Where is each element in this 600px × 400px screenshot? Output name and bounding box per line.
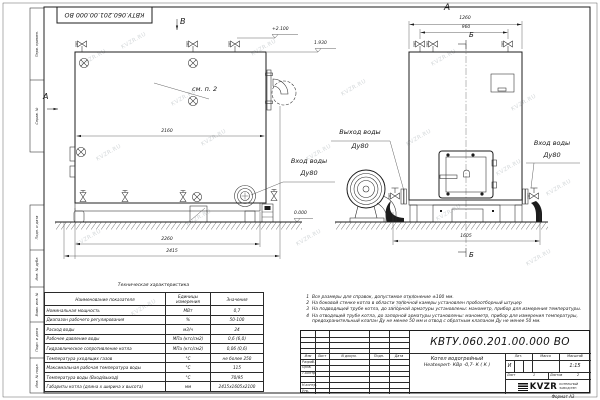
spec-col-name: Наименование показателя <box>45 293 166 306</box>
spec-row: Диапазон рабочего регулирования % 50-100 <box>45 315 264 325</box>
sheets-value: 2 <box>577 374 589 377</box>
hatch-icon <box>188 96 197 105</box>
drawing-sheet: KVZR.RU KVZR.RU KVZR.RU KVZR.RU KVZR.RU … <box>0 0 600 400</box>
lit-label: Лит. <box>505 355 532 358</box>
inlet-callout: Вход воды <box>282 158 336 165</box>
col-list: Лист <box>315 355 329 358</box>
dim-2260: 2260 <box>152 238 182 243</box>
margin-stamp: Инв. № подл. <box>32 358 43 393</box>
inlet-callout-front-dn: Ду80 <box>524 152 580 159</box>
notes-list: 1 Все размеры для справок, допустимое от… <box>302 295 587 325</box>
hatch-icon <box>188 58 197 67</box>
lit-value: И <box>505 364 514 369</box>
spec-col-units: Единицы измерения <box>166 293 211 306</box>
row-razrab: Разраб. <box>302 361 328 364</box>
row-tkontr: Т.контр. <box>302 372 328 375</box>
dim-1260: 1260 <box>450 17 480 22</box>
spec-row: Гидравлическое сопротивление котла МПа (… <box>45 344 264 354</box>
spec-table: Наименование показателя Единицы измерени… <box>44 292 264 392</box>
section-label-b-top: Б <box>469 32 474 39</box>
col-podp: Подп. <box>369 355 389 358</box>
door-handle <box>440 175 457 179</box>
spec-col-value: Значения <box>211 293 264 306</box>
note-number: 2 <box>302 301 309 306</box>
section-label-b: В <box>180 18 186 26</box>
row-nkontr: Н.контр. <box>302 384 328 387</box>
valve-icon <box>502 41 513 47</box>
scale-label: Масштаб <box>559 355 591 358</box>
note-number: 4 <box>302 314 309 324</box>
row-prov: Пров. <box>302 366 328 369</box>
spec-row: Номинальная мощность МВт 0,7 <box>45 306 264 316</box>
elevation-0000: 0.000 <box>294 212 307 217</box>
section-label-b-bottom: Б <box>469 252 474 259</box>
view-label-a: А <box>444 4 450 13</box>
note-text: На подводящей трубе котла, до запорной а… <box>312 307 587 312</box>
margin-stamp: Перв. примен. <box>32 8 43 80</box>
logo-mark-icon <box>518 383 528 391</box>
elevation-2100: +2.100 <box>272 28 289 33</box>
company-line-2: ЗАВОД РЭП <box>559 387 578 390</box>
col-data: Дата <box>389 355 409 358</box>
col-izm: Изм <box>301 355 315 358</box>
note-text: На отводящей трубе котла, до запорной ар… <box>312 314 587 324</box>
col-doc: N докум. <box>329 355 369 358</box>
see-note-callout: см. п. 2 <box>192 86 217 93</box>
margin-stamp: Подп. и дата <box>32 322 43 358</box>
dim-1605: 1605 <box>451 235 481 240</box>
section-label-a: А <box>43 93 48 101</box>
sheets-label: Листов <box>550 374 574 377</box>
valve-icon <box>187 41 198 47</box>
hatch-icon <box>192 192 201 201</box>
row-utv: Утв. <box>302 390 328 393</box>
outlet-callout-dn: Ду80 <box>330 143 390 150</box>
valve-icon <box>122 191 128 202</box>
dim-2415: 2415 <box>157 250 187 255</box>
title-block: Изм Лист N докум. Подп. Дата Разраб. Про… <box>300 330 590 393</box>
hatch-icon <box>79 58 88 67</box>
margin-stamp: Инв. № дубл. <box>32 250 43 287</box>
water-inlet-flange <box>235 186 256 207</box>
company-logo: KVZR КОТЕЛЬНЫЙ ЗАВОД РЭП <box>505 379 591 394</box>
spec-row: Габариты котла (длина х ширина х высота)… <box>45 382 264 392</box>
note-item: 4 На отводящей трубе котла, до запорной … <box>302 314 587 324</box>
note-number: 3 <box>302 307 309 312</box>
scale-value: 1:15 <box>559 364 591 369</box>
note-item: 3 На подводящей трубе котла, до запорной… <box>302 307 587 312</box>
spec-row: Максимальная рабочая температура воды °С… <box>45 363 264 373</box>
note-text: Все размеры для справок, допустимое откл… <box>312 295 587 300</box>
control-panel <box>491 74 514 92</box>
product-name-1: Котел водогрейный <box>409 357 505 362</box>
margin-stamp: Справ. № <box>32 80 43 152</box>
flue-outlet <box>266 70 297 110</box>
hatch-icon <box>76 147 85 156</box>
mass-label: Масса <box>532 355 559 358</box>
inlet-callout-dn: Ду80 <box>282 170 336 177</box>
format-label: Формат А3 <box>538 395 588 399</box>
spec-row: Расход воды м3/ч 24 <box>45 325 264 335</box>
valve-icon <box>414 41 425 47</box>
valve-icon <box>80 191 86 202</box>
valve-icon <box>427 41 438 47</box>
margin-stamp: Взам. инв. № <box>32 287 43 322</box>
furnace-door <box>439 151 497 198</box>
note-item: 1 Все размеры для справок, допустимое от… <box>302 295 587 300</box>
spec-header-row: Наименование показателя Единицы измерени… <box>45 293 264 306</box>
dim-960: 960 <box>451 26 481 31</box>
note-item: 2 На боковой стенке котла в области топо… <box>302 301 587 306</box>
boiler-side-view <box>47 19 336 259</box>
outlet-callout: Выход воды <box>330 129 390 136</box>
spec-row: Рабочее давление воды МПа (кгс/см2) 0,6 … <box>45 334 264 344</box>
doc-number: КВТУ.060.201.00.000 ВО <box>409 331 591 353</box>
logo-text: KVZR <box>530 382 557 392</box>
spec-row: Температура уходящих газов °С не более 2… <box>45 353 264 363</box>
note-number: 1 <box>302 295 309 300</box>
sheet-value: 1 <box>533 374 545 377</box>
water-inlet-valve <box>523 188 543 222</box>
valve-icon <box>271 190 277 201</box>
spec-row: Температура воды (Вход/выход) °С 70/95 <box>45 372 264 382</box>
elevation-1930: 1.930 <box>314 42 327 47</box>
inlet-callout-front: Вход воды <box>524 140 580 147</box>
note-text: На боковой стенке котла в области топочн… <box>312 301 587 306</box>
sheet-label: Лист <box>507 374 531 377</box>
valve-icon <box>229 41 240 47</box>
spec-table-title: Техническая характеристика <box>44 284 263 289</box>
corner-stamp: КВТУ.060.201.00.000 ВО <box>57 7 152 23</box>
product-name-2: Heatexpert- КВр -0,7- К ( К ) <box>409 364 505 369</box>
dim-2160: 2160 <box>152 130 182 135</box>
valve-icon <box>180 191 186 202</box>
margin-stamp: Подп. и дата <box>32 205 43 250</box>
valve-icon <box>76 41 87 47</box>
